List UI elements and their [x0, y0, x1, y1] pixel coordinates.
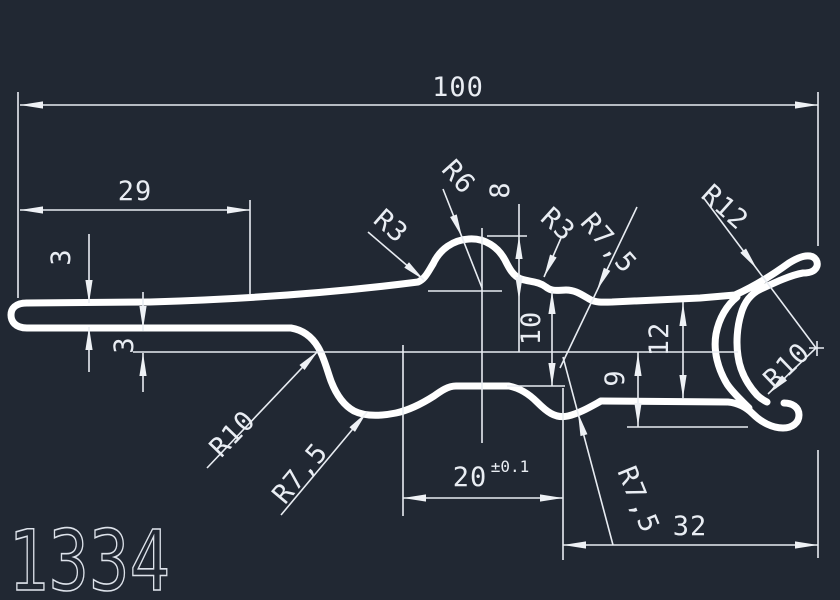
radius-r6: R6 — [435, 154, 481, 200]
dim-12: 12 — [644, 322, 675, 357]
radius-r10-hook: R10 — [758, 337, 817, 395]
profile-outline — [11, 239, 817, 428]
dim-32: 32 — [673, 511, 708, 542]
profile-bottom-wall — [11, 303, 601, 417]
dim-10: 10 — [516, 311, 547, 346]
radius-r3-right: R3 — [534, 202, 580, 248]
radius-r75-left: R7,5 — [266, 437, 334, 510]
radius-r12: R12 — [695, 179, 754, 237]
drawing-viewport: 100 29 3 3 8 10 12 9 20 ±0.1 32 R3 R6 R3… — [0, 0, 840, 600]
cad-canvas[interactable]: 100 29 3 3 8 10 12 9 20 ±0.1 32 R3 R6 R3… — [0, 0, 840, 600]
profile-top-and-hook-cavity — [27, 239, 817, 402]
dim-3-upper: 3 — [46, 248, 77, 265]
dim-8: 8 — [485, 181, 516, 198]
radius-r3-left: R3 — [367, 204, 413, 250]
radius-r10-left: R10 — [204, 405, 262, 464]
radius-texts: R3 R6 R3 R7,5 R12 R10 R10 R7,5 R7,5 — [204, 154, 817, 538]
dim-29: 29 — [118, 176, 153, 207]
radius-r75-bottom: R7,5 — [611, 462, 666, 538]
dim-20: 20 — [453, 462, 488, 493]
dim-20-tolerance: ±0.1 — [491, 457, 530, 476]
profile-arm-and-curl — [601, 401, 799, 428]
dim-100: 100 — [432, 72, 484, 103]
drawing-number: 1334 — [8, 512, 170, 600]
dim-9: 9 — [600, 369, 631, 386]
dim-3-lower: 3 — [109, 336, 140, 353]
